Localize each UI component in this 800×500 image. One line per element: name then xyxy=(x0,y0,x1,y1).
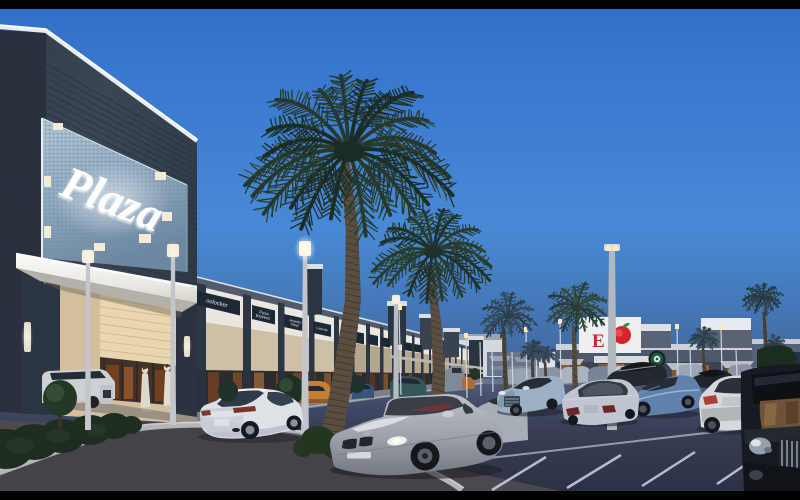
svg-text:E: E xyxy=(592,331,605,352)
